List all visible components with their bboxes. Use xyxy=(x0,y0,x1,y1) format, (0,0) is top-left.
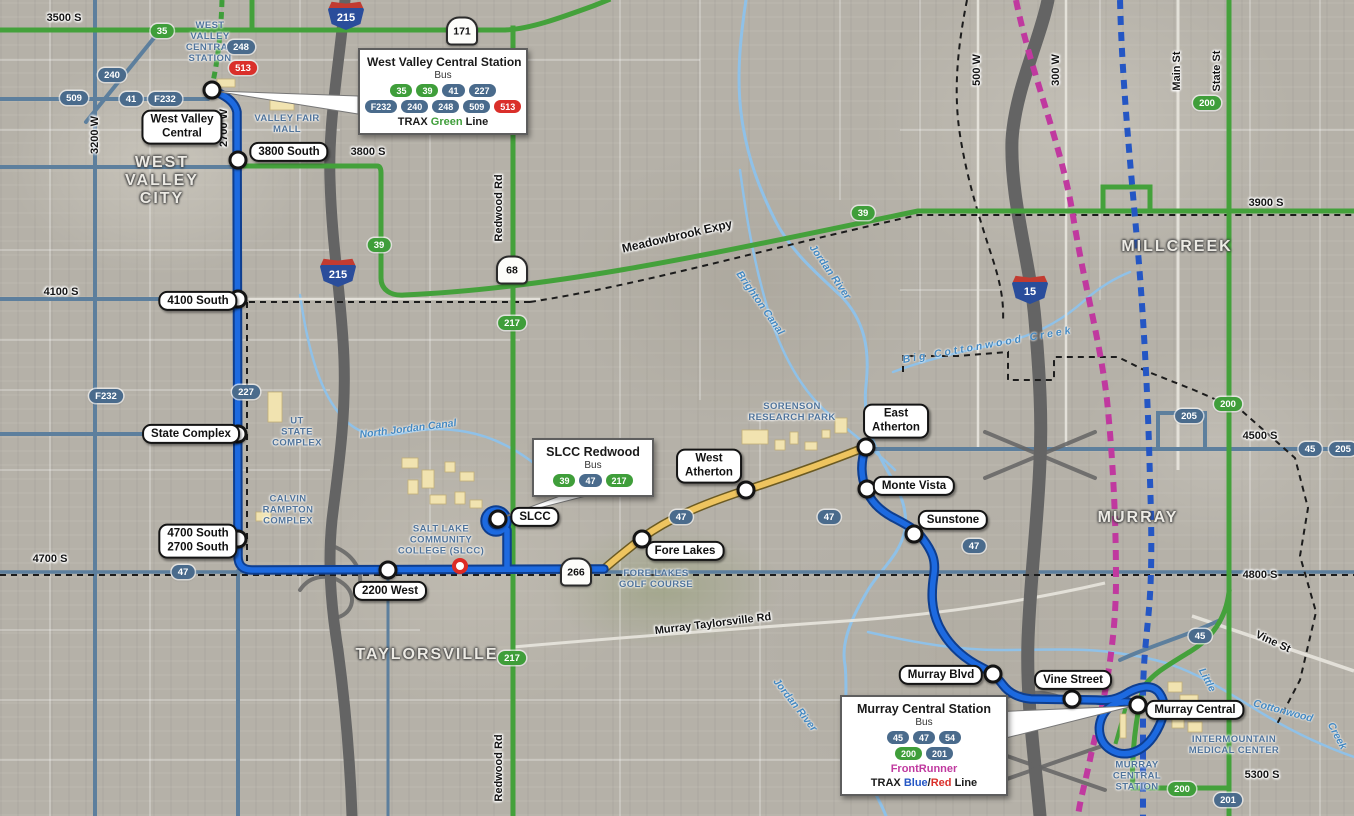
route-badge-47: 47 xyxy=(913,731,935,744)
poi-buildings xyxy=(217,79,1202,738)
area-label-valley-fair-mall: VALLEY FAIR MALL xyxy=(254,113,319,135)
stop-label-west-atherton: West Atherton xyxy=(676,449,742,484)
frontrunner-label: FrontRunner xyxy=(849,763,999,775)
callout-murray-central-station: Murray Central Station Bus 45 47 54 200 … xyxy=(840,695,1008,796)
route-badge-39: 39 xyxy=(553,474,575,487)
area-label-fore-lakes-golf: FORE LAKES GOLF COURSE xyxy=(619,568,693,590)
route-39-line xyxy=(238,166,1354,295)
stop-label-state-complex: State Complex xyxy=(142,424,240,444)
callout-title: West Valley Central Station xyxy=(367,55,519,69)
stop-label-sunstone: Sunstone xyxy=(918,510,988,530)
area-label-calvin-rampton: CALVIN RAMPTON COMPLEX xyxy=(263,494,314,527)
street-label-3800s: 3800 S xyxy=(351,146,386,158)
area-label-ut-state-complex: UT STATE COMPLEX xyxy=(272,416,322,449)
route-badge-45: 45 xyxy=(1189,629,1212,643)
area-label-slcc: SALT LAKE COMMUNITY COLLEGE (SLCC) xyxy=(398,524,484,557)
line-label: Line xyxy=(466,116,489,128)
route-badge-227: 227 xyxy=(232,385,260,399)
callout-pointers xyxy=(214,91,1133,742)
area-label-sorenson: SORENSON RESEARCH PARK xyxy=(748,401,835,423)
route-badge-205: 205 xyxy=(1175,409,1203,423)
callout-bus-row: 39 47 217 xyxy=(541,474,645,487)
route-badge-f232: F232 xyxy=(148,92,182,106)
green-line-label: Green xyxy=(431,116,463,128)
blue-line-label: Blue xyxy=(904,777,928,789)
city-label-millcreek: MILLCREEK xyxy=(1121,238,1232,256)
callout-bus-label: Bus xyxy=(367,70,519,81)
city-label-west-valley-city: WEST VALLEY CITY xyxy=(125,154,199,208)
route-badge-240: 240 xyxy=(401,100,428,113)
route-badge-f232: F232 xyxy=(89,389,123,403)
stop-dot xyxy=(229,151,248,170)
route-badge-47: 47 xyxy=(670,510,693,524)
callout-west-valley-central-station: West Valley Central Station Bus 35 39 41… xyxy=(358,48,528,135)
street-label-3500s: 3500 S xyxy=(47,12,82,24)
stop-label-murray-central: Murray Central xyxy=(1145,700,1244,720)
route-badge-39: 39 xyxy=(416,84,438,97)
callout-bus-row: 45 47 54 xyxy=(849,731,999,744)
stop-dot xyxy=(857,438,876,457)
street-label-redwood-rd: Redwood Rd xyxy=(493,734,505,801)
stop-label-2200-west: 2200 West xyxy=(353,581,427,601)
area-label-wv-central-station: WEST VALLEY CENTRAL STATION xyxy=(186,20,234,64)
ut68-shield: 68 xyxy=(496,256,528,285)
street-label-5300s: 5300 S xyxy=(1245,769,1280,781)
callout-bus-label: Bus xyxy=(541,460,645,471)
route-badge-248: 248 xyxy=(432,100,459,113)
route-badge-205: 205 xyxy=(1329,442,1354,456)
route-badge-45: 45 xyxy=(1299,442,1322,456)
route-badge-200: 200 xyxy=(895,747,922,760)
stop-label-vine-street: Vine Street xyxy=(1034,670,1112,690)
route-badge-47: 47 xyxy=(172,565,195,579)
route-badge-39: 39 xyxy=(368,238,391,252)
route-badge-217: 217 xyxy=(498,316,526,330)
stop-label-murray-blvd: Murray Blvd xyxy=(899,665,983,685)
i215-freeway xyxy=(330,0,352,816)
callout-rail-line: TRAX Blue/Red Line xyxy=(849,777,999,789)
route-badge-217: 217 xyxy=(498,651,526,665)
street-label-state-st: State St xyxy=(1211,51,1223,92)
route-badge-39: 39 xyxy=(852,206,875,220)
stop-dot xyxy=(379,561,398,580)
callout-bus-label: Bus xyxy=(849,717,999,728)
callout-rail-line: TRAX Green Line xyxy=(367,116,519,128)
route-badge-513: 513 xyxy=(494,100,521,113)
street-label-500w: 500 W xyxy=(971,54,983,86)
route-badge-200: 200 xyxy=(1214,397,1242,411)
transit-route-map: West Valley Central 3800 South 4100 Sout… xyxy=(0,0,1354,816)
stop-dot xyxy=(1063,690,1082,709)
stop-label-fore-lakes: Fore Lakes xyxy=(646,541,725,561)
route-badge-201: 201 xyxy=(926,747,953,760)
trax-label: TRAX xyxy=(398,116,428,128)
stop-label-monte-vista: Monte Vista xyxy=(873,476,955,496)
line-label: Line xyxy=(955,777,978,789)
callout-title: Murray Central Station xyxy=(849,702,999,716)
callout-bus-row: F232 240 248 509 513 xyxy=(367,100,519,113)
stop-dot xyxy=(737,481,756,500)
route-badge-227: 227 xyxy=(469,84,496,97)
stop-dot xyxy=(203,81,222,100)
route-badge-54: 54 xyxy=(939,731,961,744)
area-label-intermountain: INTERMOUNTAIN MEDICAL CENTER xyxy=(1189,734,1279,756)
route-badge-35: 35 xyxy=(390,84,412,97)
stop-dot xyxy=(489,510,508,529)
red-line-label: Red xyxy=(931,777,952,789)
route-badge-47: 47 xyxy=(818,510,841,524)
stop-dot xyxy=(984,665,1003,684)
route-badge-45: 45 xyxy=(887,731,909,744)
stop-label-4100-south: 4100 South xyxy=(158,291,237,311)
route-badge-200: 200 xyxy=(1193,96,1221,110)
city-label-murray: MURRAY xyxy=(1098,509,1179,527)
route-badge-217: 217 xyxy=(606,474,633,487)
ut266-shield: 266 xyxy=(560,558,592,587)
street-label-4700s: 4700 S xyxy=(33,553,68,565)
callout-slcc-redwood: SLCC Redwood Bus 39 47 217 xyxy=(532,438,654,497)
street-label-4100s: 4100 S xyxy=(44,286,79,298)
street-label-3900s: 3900 S xyxy=(1249,197,1284,209)
area-label-murray-central-station: MURRAY CENTRAL STATION xyxy=(1113,760,1161,793)
route-badge-200: 200 xyxy=(1168,782,1196,796)
route-badge-240: 240 xyxy=(98,68,126,82)
stop-label-4700-south: 4700 South 2700 South xyxy=(158,524,237,559)
street-label-4800s: 4800 S xyxy=(1243,569,1278,581)
route-badge-47: 47 xyxy=(963,539,986,553)
callout-bus-row: 200 201 xyxy=(849,747,999,760)
stop-label-west-valley-central: West Valley Central xyxy=(141,110,222,145)
street-label-4500s: 4500 S xyxy=(1243,430,1278,442)
stop-label-east-atherton: East Atherton xyxy=(863,404,929,439)
callout-bus-row: 35 39 41 227 xyxy=(367,84,519,97)
trax-label: TRAX xyxy=(871,777,901,789)
route-badge-f232: F232 xyxy=(365,100,398,113)
street-label-300w: 300 W xyxy=(1050,54,1062,86)
callout-title: SLCC Redwood xyxy=(541,445,645,459)
ut171-shield: 171 xyxy=(446,17,478,46)
city-label-taylorsville: TAYLORSVILLE xyxy=(355,646,498,664)
street-label-3200w: 3200 W xyxy=(89,116,101,154)
stop-label-slcc: SLCC xyxy=(510,507,559,527)
route-badge-41: 41 xyxy=(120,92,143,106)
route-badge-509: 509 xyxy=(463,100,490,113)
slcc-location-marker xyxy=(452,558,468,574)
stop-label-3800-south: 3800 South xyxy=(249,142,328,162)
route-badge-509: 509 xyxy=(60,91,88,105)
route-badge-248: 248 xyxy=(227,40,255,54)
street-label-main-st: Main St xyxy=(1171,51,1183,90)
route-badge-35: 35 xyxy=(151,24,174,38)
route-badge-201: 201 xyxy=(1214,793,1242,807)
route-badge-47: 47 xyxy=(579,474,601,487)
route-badge-41: 41 xyxy=(442,84,464,97)
street-label-redwood-rd: Redwood Rd xyxy=(493,174,505,241)
route-badge-513: 513 xyxy=(229,61,257,75)
